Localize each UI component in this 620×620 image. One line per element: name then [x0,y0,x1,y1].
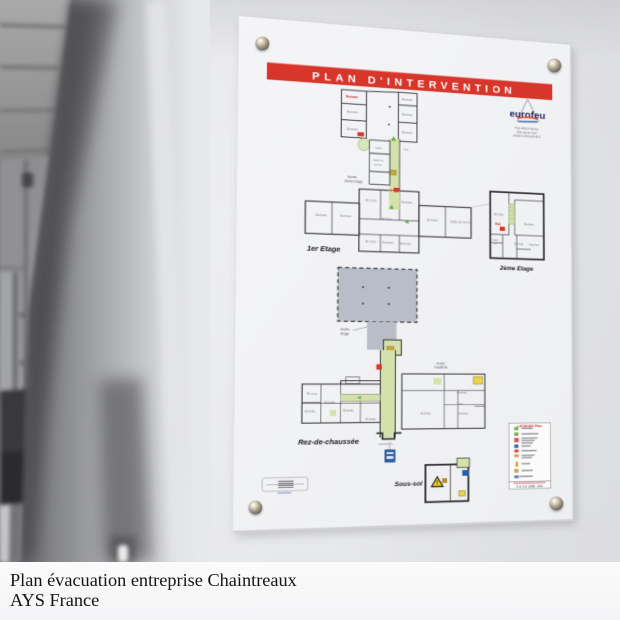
svg-text:Bureau: Bureau [458,412,468,416]
svg-text:Bureau: Bureau [421,412,431,416]
svg-text:Bureau: Bureau [346,95,358,99]
svg-text:0 X.Y.Z 1398 - 001: 0 X.Y.Z 1398 - 001 [517,485,543,489]
svg-text:Vest.: Vest. [457,402,464,406]
svg-text:Bureau: Bureau [529,243,539,247]
svg-text:Bureau: Bureau [305,409,316,413]
svg-text:Bureau: Bureau [347,110,358,114]
svg-text:Bureau: Bureau [316,213,327,217]
svg-text:Bureau: Bureau [307,392,318,396]
svg-text:Sous-sol: Sous-sol [394,481,423,488]
svg-text:!: ! [436,480,438,486]
svg-text:Salle: Salle [375,146,382,150]
svg-text:2ème Etage: 2ème Etage [499,265,533,272]
svg-text:Bureau: Bureau [365,417,376,421]
svg-text:1er Etage: 1er Etage [307,244,340,253]
svg-text:Bureau: Bureau [514,242,524,246]
svg-text:Bureau: Bureau [382,241,393,245]
svg-text:Bureau: Bureau [400,242,411,246]
svg-text:RIA: RIA [495,222,501,226]
svg-text:Bureau: Bureau [324,400,335,404]
svg-text:Bureau: Bureau [524,223,534,227]
svg-text:Bureau: Bureau [401,201,412,205]
svg-text:info: info [493,241,498,245]
svg-text:Bureau: Bureau [402,113,413,117]
svg-text:San.: San. [404,148,410,152]
svg-text:chaufferie: chaufferie [434,366,448,370]
svg-text:Bureau: Bureau [340,214,351,218]
svg-text:Bureau: Bureau [365,240,376,244]
svg-text:Bureau: Bureau [457,391,467,395]
svg-text:Bureau: Bureau [366,198,377,202]
svg-text:Platine: Platine [382,217,392,221]
svg-text:Bureau: Bureau [343,409,354,413]
svg-text:Bureau: Bureau [402,131,413,135]
svg-text:pause: pause [374,163,382,167]
svg-text:Rez-de-chaussée: Rez-de-chaussée [298,437,359,446]
svg-text:Bureau: Bureau [347,127,358,131]
svg-text:Etage: Etage [340,332,349,336]
svg-text:Bureau: Bureau [427,218,438,222]
svg-text:Bureau: Bureau [402,98,413,102]
svg-text:Bureau: Bureau [494,213,504,217]
